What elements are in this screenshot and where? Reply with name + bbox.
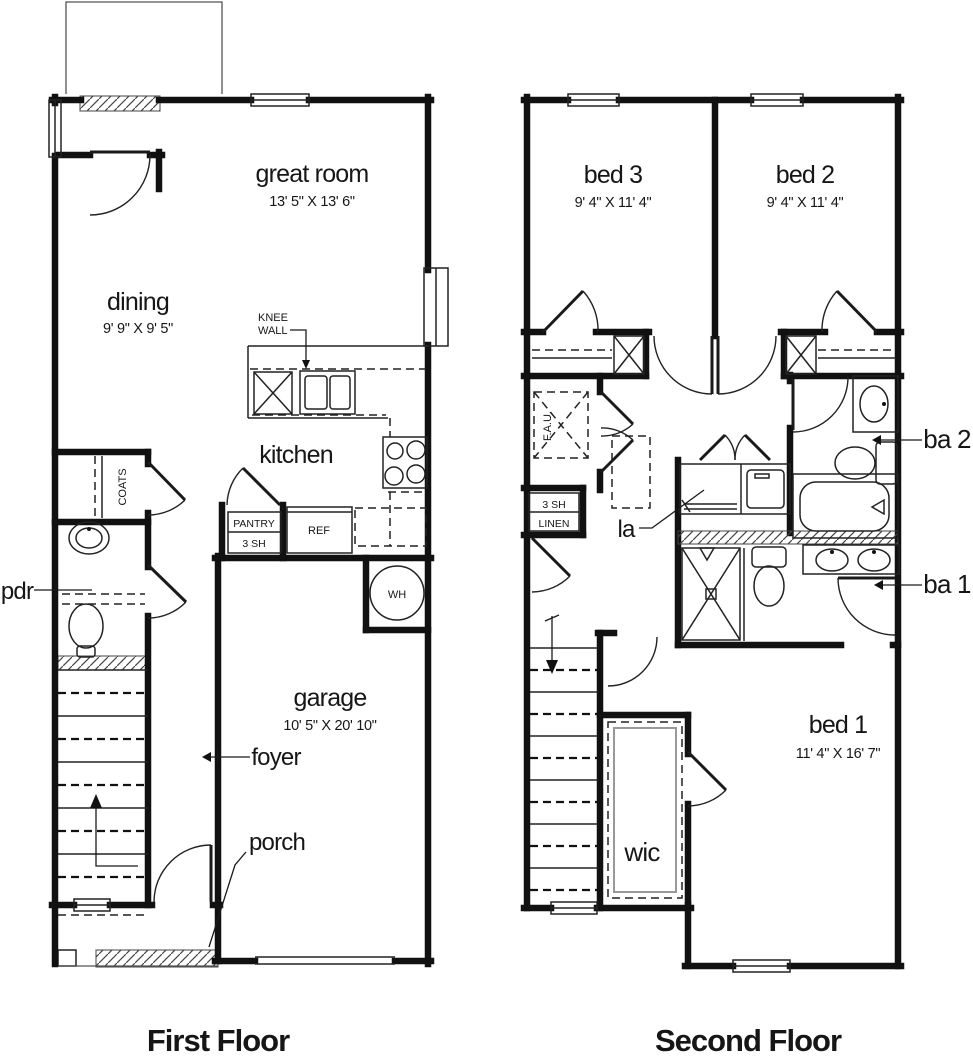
bed1-label: bed 1 (809, 711, 868, 739)
bed3-closet-door-arc (583, 291, 598, 332)
first-floor-title: First Floor (147, 1023, 290, 1058)
ba1-vanity (803, 545, 899, 574)
kitchen-label: kitchen (259, 441, 333, 469)
knee-wall-label-1: KNEE (258, 312, 288, 324)
laundry-door-arc (725, 435, 735, 460)
great-room-dims: 13' 5" X 13' 6" (269, 194, 355, 210)
bed3-dims: 9' 4" X 11' 4" (575, 195, 652, 211)
coats-door-leaf (148, 462, 185, 500)
hall-door-leaf (532, 538, 570, 576)
ba1-label: ba 1 (923, 569, 971, 599)
fau-label: F.A.U. (542, 411, 554, 441)
second-floor-title: Second Floor (655, 1023, 842, 1058)
linen-label-2: LINEN (539, 518, 570, 530)
bed2-closet-door-leaf (837, 291, 877, 332)
laundry-door-leaf (700, 435, 725, 460)
ref-label: REF (308, 525, 330, 537)
porch-label: porch (249, 829, 305, 856)
bed2-door-arc (718, 336, 776, 394)
coats-door-arc (148, 500, 185, 515)
stair-down-arrow-icon (546, 660, 558, 674)
first-floor-walls (52, 97, 431, 964)
bed3-door-arc (654, 336, 712, 394)
wh-label: WH (388, 589, 406, 601)
garage-dims: 10' 5" X 20' 10" (283, 718, 376, 734)
floor-plan-drawing: great room 13' 5" X 13' 6" dining 9' 9" … (0, 0, 973, 1064)
bed1-dims: 11' 4" X 16' 7" (796, 746, 881, 762)
dining-label: dining (107, 288, 169, 316)
bed3-closet-door-leaf (543, 291, 583, 332)
bed3-label: bed 3 (584, 161, 643, 189)
tub-faucet-icon (872, 500, 884, 514)
linen-label-1: 3 SH (542, 499, 565, 511)
washer-icon (747, 470, 784, 508)
pdr-label: pdr (1, 578, 34, 605)
laundry-label: la (617, 516, 636, 543)
great-room-label: great room (256, 160, 369, 188)
wic-interior (608, 722, 682, 898)
bed2-dims: 9' 4" X 11' 4" (767, 195, 844, 211)
first-floor-plan (34, 2, 448, 967)
pdr-toilet-icon (69, 604, 103, 648)
patio-outline (66, 2, 222, 94)
garage-label: garage (293, 684, 366, 712)
wic-label: wic (623, 837, 660, 867)
ba2-toilet-icon (876, 442, 897, 484)
ba2-door-arc (793, 377, 848, 432)
bed2-closet-door-arc (822, 291, 837, 332)
laundry-swing-area (612, 436, 650, 508)
ba1-fixtures (682, 545, 899, 641)
pdr-sink-icon (69, 522, 109, 554)
coats-label: COATS (117, 468, 129, 505)
floor-plan-page: great room 13' 5" X 13' 6" dining 9' 9" … (0, 0, 973, 1064)
utility-closets (529, 392, 790, 531)
patio-door-arc (90, 155, 150, 215)
first-floor-stairs (58, 670, 148, 877)
second-floor-plan (524, 94, 922, 972)
wic-door-leaf (688, 752, 726, 790)
showerhead-icon (700, 548, 714, 560)
dining-dims: 9' 9" X 9' 5" (103, 321, 173, 337)
pantry-door-leaf (243, 468, 280, 505)
knee-wall-label-2: WALL (258, 325, 288, 337)
porch-steps-hatch (96, 950, 218, 967)
bedroom-closets (532, 336, 896, 374)
ba2-label: ba 2 (923, 424, 971, 454)
hall-door-arc (532, 576, 570, 592)
ba2-fixtures (793, 376, 898, 538)
pantry-label-1: PANTRY (233, 518, 275, 530)
foyer-label: foyer (251, 744, 301, 771)
fau-door-leaf (601, 392, 633, 424)
laundry-door-leaf (745, 435, 770, 460)
wic-door-arc (688, 790, 726, 806)
laundry-door-arc (735, 435, 745, 460)
pantry-label-2: 3 SH (242, 538, 265, 550)
pantry-door-arc (227, 468, 243, 505)
first-floor-windows (49, 94, 448, 911)
second-floor-stairs (530, 615, 598, 890)
bed2-label: bed 2 (776, 161, 835, 189)
laundry-closet (680, 464, 790, 514)
coats-closet-interior (95, 456, 102, 518)
stair-up-arrow-icon (90, 794, 102, 808)
ba1-door-arc (838, 578, 895, 635)
patio-door-threshold (80, 96, 160, 111)
pdr-door-arc (148, 602, 186, 618)
pdr-door-leaf (148, 565, 186, 602)
stair-base-hatch (58, 656, 148, 670)
stair-hall-door-arc (608, 637, 657, 686)
fau-door-leaf (601, 440, 633, 472)
front-door-arc (154, 845, 211, 902)
labels: great room 13' 5" X 13' 6" dining 9' 9" … (1, 160, 971, 1058)
porch-post (58, 950, 76, 966)
stair-direction-line (96, 806, 138, 866)
ba1-toilet-icon (752, 547, 786, 567)
